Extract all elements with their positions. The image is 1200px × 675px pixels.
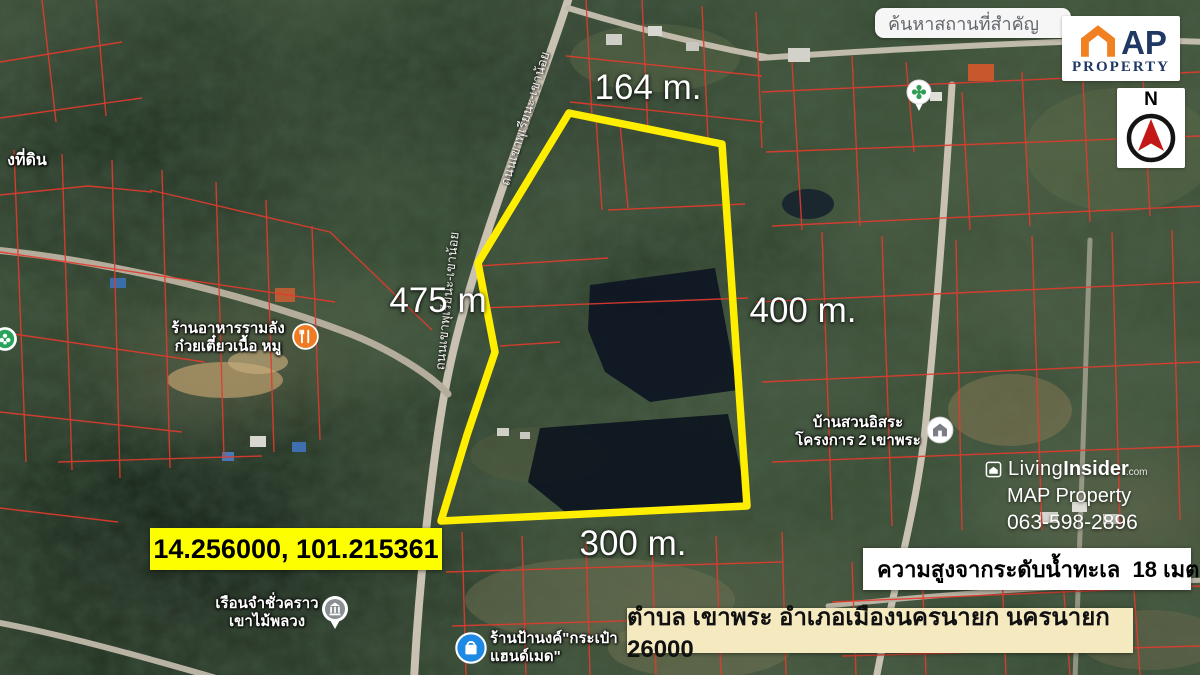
search-text: ค้นหาสถานที่สำคัญ — [888, 9, 1039, 38]
watermark: LivingInsider.com MAP Property 063-598-2… — [985, 458, 1148, 535]
homestay-icon[interactable] — [926, 416, 954, 444]
dimension-right: 400 m. — [738, 291, 868, 331]
watermark-tld: .com — [1126, 467, 1148, 478]
address-value: ตำบล เขาพระ อำเภอเมืองนครนายก นครนายก 26… — [627, 597, 1133, 664]
dimension-left: 475 m — [383, 281, 493, 321]
map-screenshot: ถนนเขาพุเรียนะ-เขาน้อย ถนนเขาพุเรียนะ-เข… — [0, 0, 1200, 675]
land-office-label: งที่ดิน — [0, 152, 62, 171]
temple-icon[interactable] — [905, 78, 933, 112]
watermark-name: MAP Property — [1007, 485, 1148, 508]
homestay-label: บ้านสวนอิสระ โครงการ 2 เขาพระ — [788, 414, 928, 449]
watermark-insider: Insider — [1063, 458, 1129, 480]
dimension-bottom: 300 m. — [553, 524, 713, 564]
prison-label: เรือนจำชั่วคราว เขาไม้พลวง — [203, 595, 331, 630]
coordinates-badge: 14.256000, 101.215361 — [150, 528, 442, 570]
search-input[interactable]: ค้นหาสถานที่สำคัญ — [875, 8, 1071, 38]
brand-logo: AP PROPERTY — [1062, 16, 1180, 81]
logo-ap-text: AP — [1121, 28, 1167, 58]
park-icon[interactable] — [0, 326, 18, 352]
shop-icon[interactable] — [455, 632, 487, 664]
elevation-value: ความสูงจากระดับน้ำทะเล 18 เมตร — [877, 552, 1200, 587]
living-insider-icon — [985, 461, 1002, 478]
shop-label: ร้านป้านงค์"กระเป๋า แฮนด์เมด" — [490, 630, 640, 665]
logo-property-text: PROPERTY — [1072, 59, 1170, 76]
restaurant-label: ร้านอาหารรามลัง ก๋วยเตี๋ยวเนื้อ หมู — [152, 320, 304, 355]
restaurant-icon[interactable] — [292, 323, 319, 350]
compass: N — [1117, 88, 1185, 168]
watermark-phone: 063-598-2896 — [1007, 511, 1148, 535]
coordinates-value: 14.256000, 101.215361 — [153, 534, 438, 565]
address-badge: ตำบล เขาพระ อำเภอเมืองนครนายก นครนายก 26… — [627, 608, 1133, 653]
map-house-m-icon — [1075, 24, 1121, 58]
dimension-top: 164 m. — [553, 68, 743, 108]
compass-north-label: N — [1144, 89, 1158, 111]
compass-icon — [1123, 111, 1179, 165]
prison-icon[interactable] — [320, 594, 350, 630]
watermark-living: Living — [1008, 458, 1063, 480]
elevation-badge: ความสูงจากระดับน้ำทะเล 18 เมตร — [863, 548, 1191, 590]
